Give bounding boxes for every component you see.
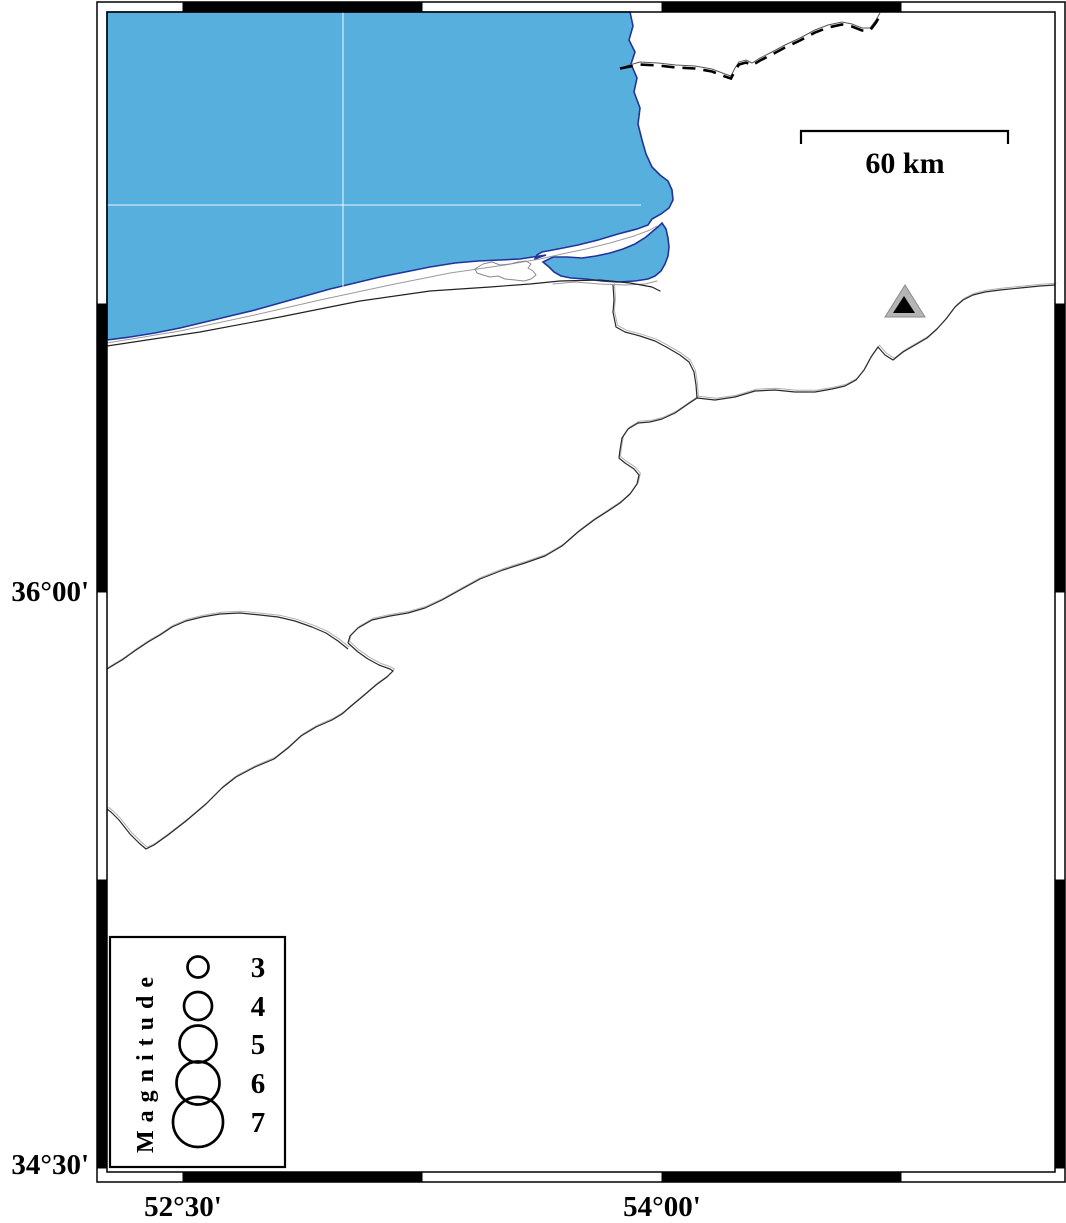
frame-tick-right-2 [1055,880,1065,1168]
frame-tick-top-1 [183,2,422,12]
frame-tick-left-1 [97,304,107,592]
frame-tick-bottom-2 [662,1172,901,1182]
legend-value-m3: 3 [251,952,266,984]
legend-value-m4: 4 [251,991,266,1023]
label-lat-36: 36°00' [11,576,89,608]
legend-value-m5: 5 [251,1029,266,1061]
legend-title: Magnitude [133,969,159,1153]
map-svg: 60 km Magnitude 3 4 5 6 7 [0,0,1066,1223]
label-lon-54: 54°00' [623,1191,701,1223]
label-lat-34-30: 34°30' [11,1149,89,1181]
map-figure: 60 km Magnitude 3 4 5 6 7 [0,0,1066,1223]
magnitude-legend: Magnitude 3 4 5 6 7 [110,937,285,1167]
frame-tick-right-1 [1055,304,1065,592]
legend-value-m7: 7 [251,1107,266,1139]
legend-value-m6: 6 [251,1068,266,1100]
frame-tick-top-2 [662,2,901,12]
frame-tick-bottom-1 [183,1172,422,1182]
scale-bar-label: 60 km [865,147,944,180]
label-lon-52-30: 52°30' [144,1191,222,1223]
frame-tick-left-2 [97,880,107,1168]
